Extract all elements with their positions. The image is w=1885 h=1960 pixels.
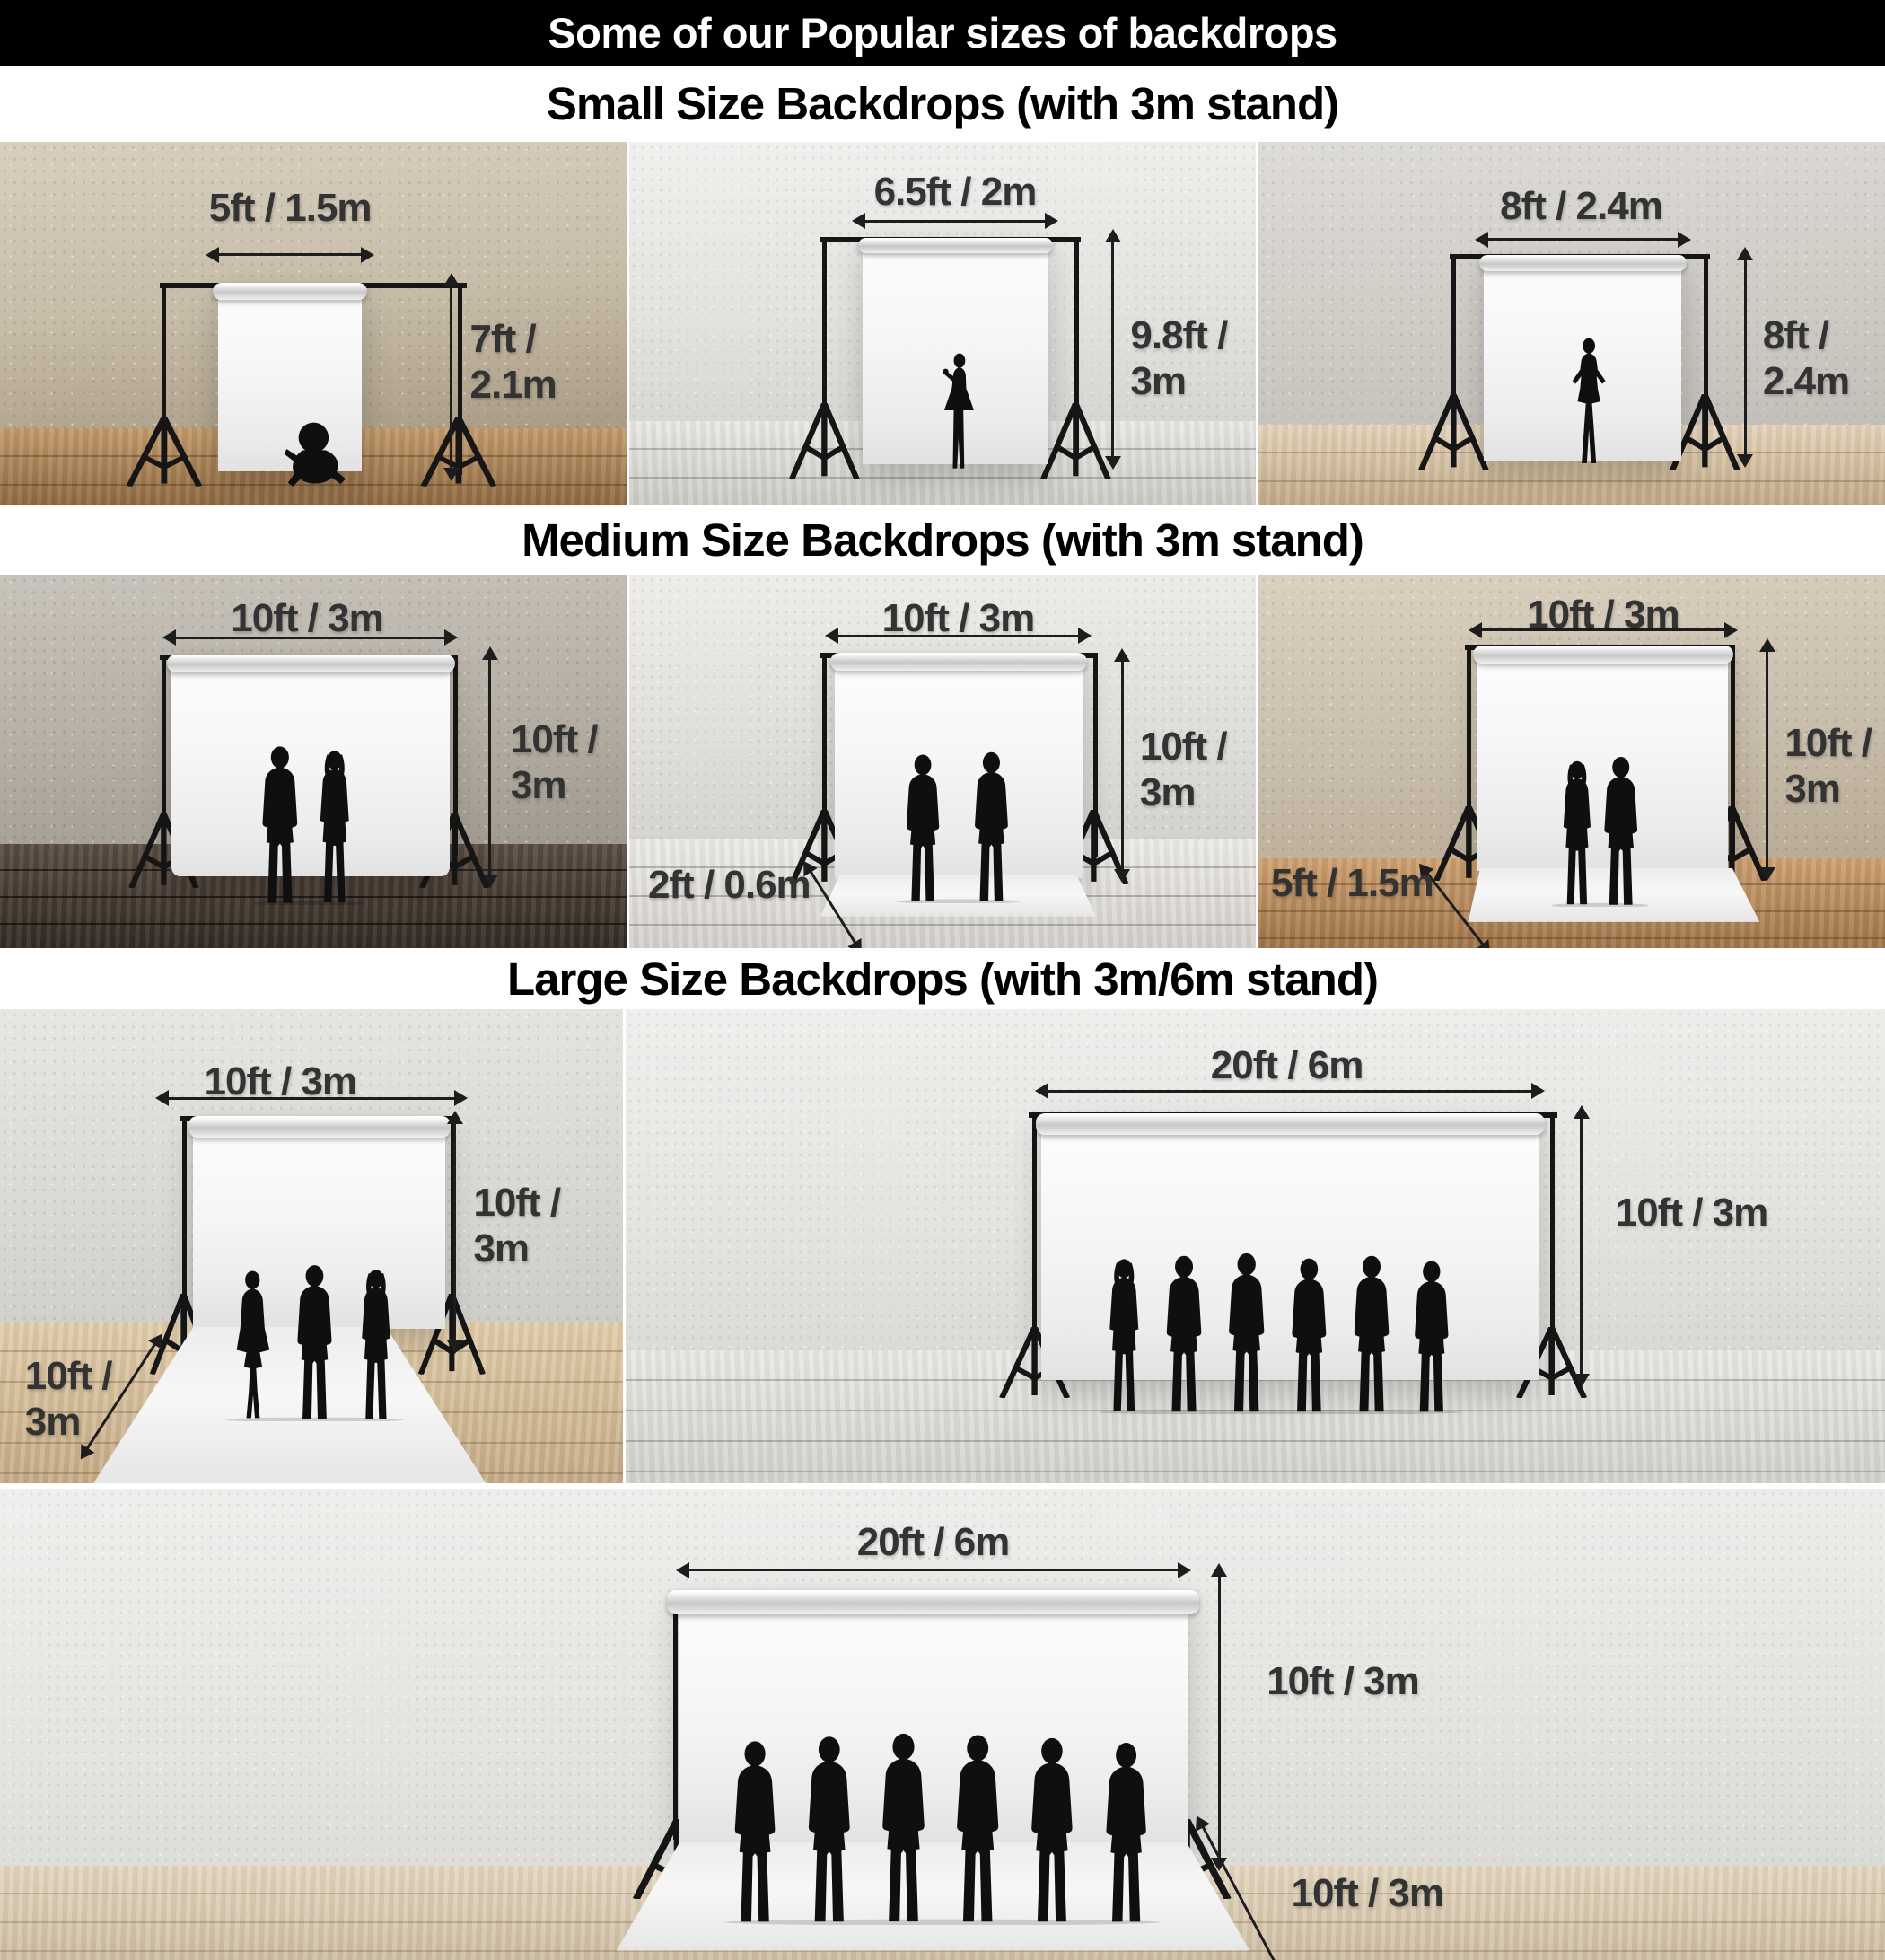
row-small-backdrops: 5ft / 1.5m 7ft / 2.1m 6.5ft / 2m 9.8ft / [0,142,1885,505]
width-label: 6.5ft / 2m [874,169,1037,215]
couple-silhouette [1547,732,1653,908]
infographic-page: Some of our Popular sizes of backdrops S… [0,0,1885,1960]
panel-large-10ft-trio: 10ft / 3m 10ft / 3m 10ft / 3m [0,1009,623,1483]
height-label: 10ft / 3m [511,716,598,808]
backdrop-roll [1473,646,1733,664]
height-arrow [1744,259,1747,455]
posing-woman-silhouette [1553,338,1625,466]
height-arrow [453,1123,456,1341]
width-arrow [1048,1090,1532,1093]
two-men-silhouette [892,735,1024,903]
backdrop-roll [1479,255,1686,271]
panel-medium-10ft-couple-sweep: 10ft / 3m 10ft / 3m 5ft / 1.5m [1258,575,1885,948]
backdrop-roll [667,1590,1198,1613]
row-medium-backdrops: 10ft / 3m 10ft / 3m 10ft / 3 [0,575,1885,948]
width-arrow [218,253,363,256]
six-people-group-silhouette [1092,1217,1469,1414]
panel-large-20ft-group: 20ft / 6m 10ft / 3m [626,1009,1885,1483]
panel-small-5ft: 5ft / 1.5m 7ft / 2.1m [0,142,627,505]
stand-tripod-left [784,403,865,479]
width-label: 10ft / 3m [205,1059,357,1104]
height-arrow [1580,1118,1583,1374]
width-label: 10ft / 3m [231,595,383,641]
backdrop-roll [858,238,1052,254]
section-title-large: Large Size Backdrops (with 3m/6m stand) [0,948,1885,1009]
height-label: 10ft / 3m [473,1180,560,1271]
backdrop-roll [830,653,1087,671]
three-business-people-silhouette [221,1227,408,1421]
panel-medium-10ft-couple: 10ft / 3m 10ft / 3m [0,575,627,948]
height-label: 10ft / 3m [1616,1190,1768,1235]
width-arrow [1487,238,1679,241]
height-arrow [1121,661,1124,870]
backdrop-roll [213,283,367,300]
floor-depth-label: 10ft / 3m [25,1353,112,1445]
height-label: 10ft / 3m [1267,1658,1419,1704]
height-label: 7ft / 2.1m [470,316,557,408]
width-label: 20ft / 6m [857,1519,1010,1565]
width-label: 5ft / 1.5m [209,185,372,231]
width-label: 8ft / 2.4m [1500,183,1662,229]
height-label: 10ft / 3m [1784,720,1872,812]
section-title-medium: Medium Size Backdrops (with 3m stand) [0,505,1885,575]
stand-tripod-left [120,417,208,487]
header-bar: Some of our Popular sizes of backdrops [0,0,1885,66]
floor-depth-label: 10ft / 3m [1292,1870,1444,1916]
width-arrow [864,220,1046,223]
height-arrow [1218,1576,1221,1859]
backdrop-roll [1036,1113,1545,1135]
width-arrow [688,1569,1179,1571]
floor-depth-label: 5ft / 1.5m [1271,860,1433,906]
width-label: 20ft / 6m [1211,1042,1363,1088]
height-arrow [1766,651,1768,867]
height-arrow [1111,242,1114,457]
section-title-small: Small Size Backdrops (with 3m stand) [0,66,1885,142]
couple-silhouette [248,732,367,905]
stand-pole-left [673,1595,678,1840]
height-label: 10ft / 3m [1140,724,1227,815]
row-large-bottom: 20ft / 6m 10ft / 3m 10ft / 3m [0,1489,1885,1960]
panel-medium-10ft-two-men: 10ft / 3m 10ft / 3m 2ft / 0.6m [629,575,1256,948]
backdrop-roll [167,655,455,672]
floor-depth-label: 2ft / 0.6m [648,862,811,908]
stand-tripod-left [1413,394,1495,470]
backdrop-roll [188,1116,450,1137]
width-label: 10ft / 3m [882,595,1035,641]
row-large-backdrops: 10ft / 3m 10ft / 3m 10ft / 3m [0,1009,1885,1483]
sitting-baby-silhouette [279,410,361,487]
six-men-in-suits-silhouette [716,1677,1169,1925]
height-arrow [450,286,452,469]
panel-large-20ft-sweep: 20ft / 6m 10ft / 3m 10ft / 3m [0,1489,1885,1960]
height-arrow [488,659,491,875]
width-label: 10ft / 3m [1527,592,1679,637]
header-title: Some of our Popular sizes of backdrops [548,8,1337,57]
girl-in-dress-silhouette [921,352,996,471]
panel-small-6-5ft: 6.5ft / 2m 9.8ft / 3m [629,142,1256,505]
height-label: 8ft / 2.4m [1763,312,1849,404]
height-label: 9.8ft / 3m [1130,312,1227,404]
panel-small-8ft: 8ft / 2.4m 8ft / 2.4m [1258,142,1885,505]
